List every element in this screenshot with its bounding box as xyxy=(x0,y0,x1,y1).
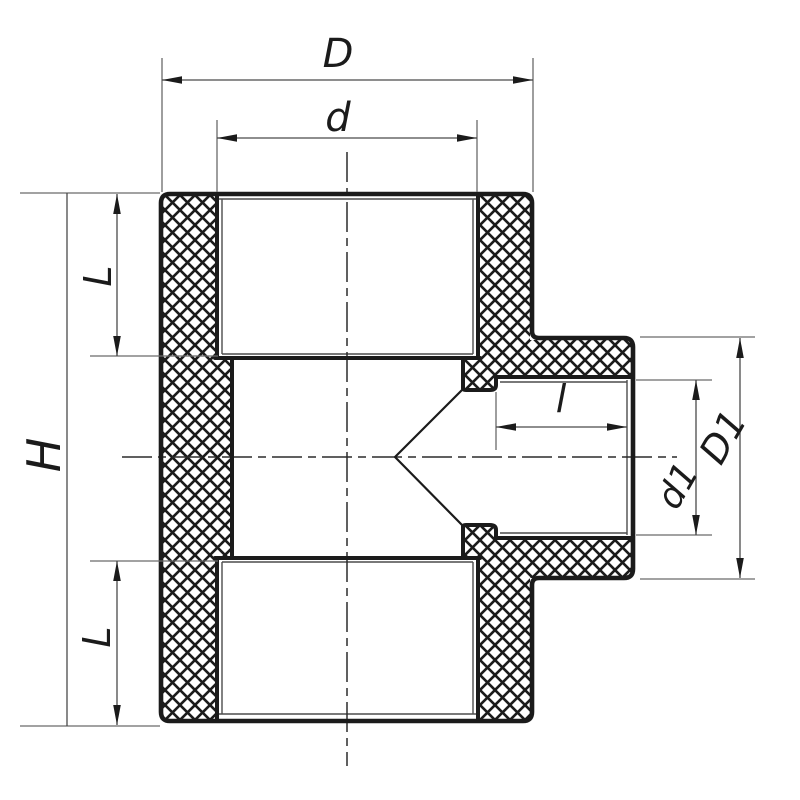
dimension-label-L-bottom: L xyxy=(75,626,119,647)
dimension-l-arrow-right xyxy=(607,423,627,431)
technical-drawing-canvas: D d L H L l xyxy=(0,0,800,800)
dimension-L-bottom-arrow-up xyxy=(113,561,121,581)
dimension-L-top-arrow-up xyxy=(113,194,121,214)
dimension-d-arrow-right xyxy=(457,134,477,142)
dimension-d-arrow-left xyxy=(217,134,237,142)
dimension-D1-arrow-down xyxy=(736,558,744,578)
dimension-D1-extension-lines xyxy=(640,337,755,579)
dimension-D1: D1 xyxy=(640,337,755,579)
dimension-d1-arrow-up xyxy=(692,380,700,400)
dimension-l-arrow-left xyxy=(496,423,516,431)
dimension-label-H: H xyxy=(17,438,71,473)
dimension-label-l: l xyxy=(556,377,567,421)
dimension-label-D1: D1 xyxy=(691,403,756,471)
dimension-d1-arrow-down xyxy=(692,515,700,535)
dimension-D-arrow-left xyxy=(162,76,182,84)
dimension-D1-arrow-up xyxy=(736,338,744,358)
upper-right-wall-and-branch-top-hatch xyxy=(463,196,631,390)
dimension-l: l xyxy=(496,377,627,450)
dimension-L-bottom-arrow-down xyxy=(113,705,121,725)
dimension-D-arrow-right xyxy=(513,76,533,84)
dimension-label-D: D xyxy=(323,31,354,77)
lower-right-wall-and-branch-bottom-hatch xyxy=(463,525,631,719)
tee-fitting-section-drawing: D d L H L l xyxy=(0,0,800,800)
dimension-label-d1: d1 xyxy=(649,456,707,516)
dimension-L-top-arrow-down xyxy=(113,336,121,356)
dimension-label-L-top: L xyxy=(76,265,120,286)
dimension-label-d: d xyxy=(325,95,351,141)
